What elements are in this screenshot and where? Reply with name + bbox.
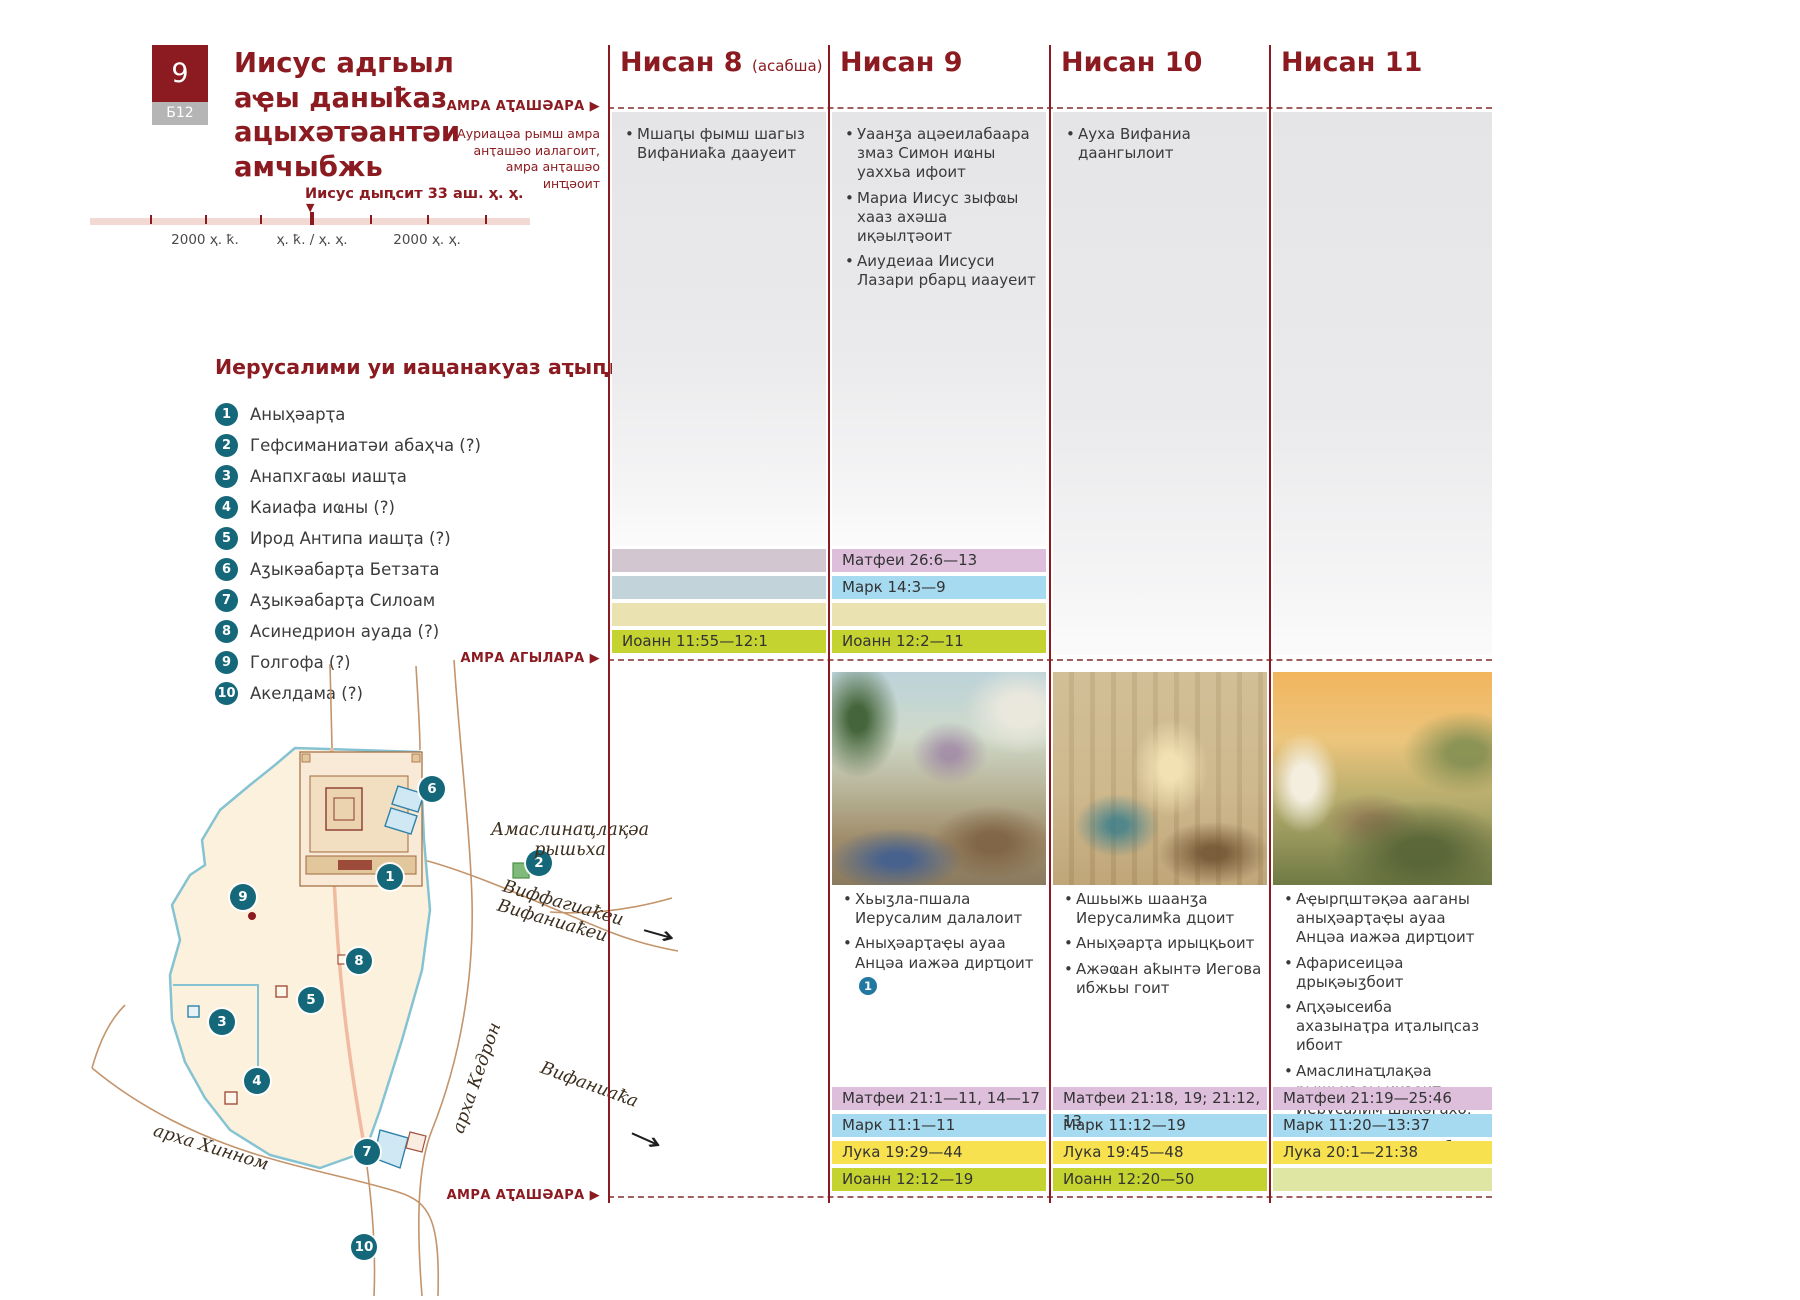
ref-matthew: Матфеи 21:18, 19; 21:12, 13 xyxy=(1053,1087,1267,1110)
event-item: Аныҳәарҭаҿы ауаа Анцәа иажәа дирҵоит1 xyxy=(842,934,1042,994)
place-label: Асинедрион ауада (?) xyxy=(250,622,439,641)
place-item: 6Аӡыкәабарҭа Бетзата xyxy=(215,558,440,584)
place-item: 3Анапхгаҩы иашҭа xyxy=(215,465,407,491)
event-item: Афарисеицәа дрықәыӡбоит xyxy=(1283,954,1488,992)
timeline-tick-label: 2000 ҳ. ҳ. xyxy=(367,232,487,248)
column-header: Нисан 10 xyxy=(1061,47,1202,78)
place-number-badge: 7 xyxy=(215,589,238,612)
map-marker-8: 8 xyxy=(346,948,372,974)
place-label: Аӡыкәабарҭа Бетзата xyxy=(250,560,440,579)
column-nisan-10: Нисан 10 Ауха Вифаниа даангылоит Ашьыжь … xyxy=(1049,45,1267,1203)
timeline-tick-center xyxy=(310,212,314,225)
column-header: Нисан 11 xyxy=(1281,47,1422,78)
evening-events-panel xyxy=(1273,112,1492,655)
column-header: Нисан 8 (асабша) xyxy=(620,47,823,78)
event-item: Аныҳәарҭа ирыцқьоит xyxy=(1063,934,1263,953)
column-nisan-9: Нисан 9 Уаанӡа ацәеилабаара змаз Симон и… xyxy=(828,45,1046,1203)
map-marker-10: 10 xyxy=(351,1234,377,1260)
timeline-tick xyxy=(150,215,152,224)
evening-events-panel: Уаанӡа ацәеилабаара змаз Симон иҩны уахх… xyxy=(832,112,1046,546)
ref-john: Иоанн 12:12—19 xyxy=(832,1168,1046,1191)
map-marker-1: 1 xyxy=(377,864,403,890)
map-reference-badge: 1 xyxy=(859,977,877,995)
column-header: Нисан 9 xyxy=(840,47,963,78)
column-title: Нисан 9 xyxy=(840,47,963,78)
ref-john: Иоанн 11:55—12:1 xyxy=(612,630,826,653)
event-item: Аԥҳәысеиба ахазынаҭра иҭалыԥсаз ибоит xyxy=(1283,998,1488,1056)
column-title: Нисан 8 xyxy=(620,47,743,78)
timeline-tick xyxy=(485,215,487,224)
map-marker-5: 5 xyxy=(298,987,324,1013)
event-item: Ажәҩан аҟынтә Иегова ибжьы гоит xyxy=(1063,960,1263,998)
map-marker-9: 9 xyxy=(230,884,256,910)
scripture-refs: Иоанн 11:55—12:1 xyxy=(612,549,826,657)
timeline-tick xyxy=(205,215,207,224)
sunset-label-top: АМРА АҬАШӘАРА ▶ xyxy=(380,99,600,114)
illustration-teaching-olives xyxy=(1273,672,1492,885)
place-label: Аныҳәарҭа xyxy=(250,405,345,424)
place-number-badge: 6 xyxy=(215,558,238,581)
chart-page: 9 Б12 Иисус адгьыл аҿы даныҟаз ацыхәтәан… xyxy=(0,0,1800,1300)
evening-events-panel: Ауха Вифаниа даангылоит xyxy=(1053,112,1267,655)
map-marker-3: 3 xyxy=(209,1009,235,1035)
event-item: Аиудеиаа Иисуси Лазари рбарц иаауеит xyxy=(844,252,1038,290)
map-marker-4: 4 xyxy=(244,1068,270,1094)
place-label: Анапхгаҩы иашҭа xyxy=(250,467,407,486)
scripture-refs: Матфеи 21:19—25:46 Марк 11:20—13:37 Лука… xyxy=(1273,1087,1492,1195)
timeline-tick xyxy=(427,215,429,224)
ref-john xyxy=(1273,1168,1492,1191)
scripture-refs: Матфеи 21:1—11, 14—17 Марк 11:1—11 Лука … xyxy=(832,1087,1046,1195)
scripture-refs: Матфеи 26:6—13 Марк 14:3—9 Иоанн 12:2—11 xyxy=(832,549,1046,657)
daytime-events: Ашьыжь шаанӡа Иерусалимҟа дцоит Аныҳәарҭ… xyxy=(1053,890,1267,1004)
sunset-label-text: АМРА АҬАШӘАРА xyxy=(447,99,585,114)
ref-john: Иоанн 12:20—50 xyxy=(1053,1168,1267,1191)
ref-mark: Марк 11:1—11 xyxy=(832,1114,1046,1137)
event-text: Аныҳәарҭаҿы ауаа Анцәа иажәа дирҵоит xyxy=(855,934,1034,971)
ref-john: Иоанн 12:2—11 xyxy=(832,630,1046,653)
ref-mark: Марк 14:3—9 xyxy=(832,576,1046,599)
timeline-tick xyxy=(370,215,372,224)
map-marker-7: 7 xyxy=(354,1139,380,1165)
ref-matthew: Матфеи 26:6—13 xyxy=(832,549,1046,572)
timeline-tick-label: 2000 ҳ. ҟ. xyxy=(145,232,265,248)
place-item: 1Аныҳәарҭа xyxy=(215,403,345,429)
daytime-events: Хьыӡла-пшала Иерусалим далалоит Аныҳәарҭ… xyxy=(832,890,1046,1001)
place-label: Каиафа иҩны (?) xyxy=(250,498,395,517)
ref-luke: Лука 19:45—48 xyxy=(1053,1141,1267,1164)
timeline-tick-label: ҳ. ҟ. / ҳ. ҳ. xyxy=(252,232,372,248)
event-item: Мариа Иисус зыфҩы хааз ахәша иқәылҭәоит xyxy=(844,189,1038,247)
illustration-temple-cleansing xyxy=(1053,672,1267,885)
map-marker-6: 6 xyxy=(419,776,445,802)
section-code-badge: Б12 xyxy=(152,102,208,125)
scripture-refs: Матфеи 21:18, 19; 21:12, 13 Марк 11:12—1… xyxy=(1053,1087,1267,1195)
ref-luke: Лука 19:29—44 xyxy=(832,1141,1046,1164)
place-number-badge: 2 xyxy=(215,434,238,457)
column-nisan-8: Нисан 8 (асабша) Мшаԥы фымш шагыз Вифани… xyxy=(608,45,826,1203)
column-title: Нисан 11 xyxy=(1281,47,1422,78)
place-number-badge: 4 xyxy=(215,496,238,519)
event-item: Хьыӡла-пшала Иерусалим далалоит xyxy=(842,890,1042,928)
ref-mark: Марк 11:12—19 xyxy=(1053,1114,1267,1137)
event-item: Ашьыжь шаанӡа Иерусалимҟа дцоит xyxy=(1063,890,1263,928)
place-item: 8Асинедрион ауада (?) xyxy=(215,620,439,646)
place-number-badge: 3 xyxy=(215,465,238,488)
jerusalem-map xyxy=(80,660,680,1300)
sunset-note: Ауриацәа рымш амра анҭашәо иалагоит, амр… xyxy=(455,126,600,192)
place-label: Аӡыкәабарҭа Силоам xyxy=(250,591,435,610)
ref-matthew: Матфеи 21:1—11, 14—17 xyxy=(832,1087,1046,1110)
place-item: 4Каиафа иҩны (?) xyxy=(215,496,395,522)
triangle-right-icon: ▶ xyxy=(590,99,600,114)
event-item: Ауха Вифаниа даангылоит xyxy=(1065,125,1259,163)
place-label: Гефсиманиатәи абаҳча (?) xyxy=(250,436,481,455)
page-title: Иисус адгьыл аҿы даныҟаз ацыхәтәантәи ам… xyxy=(234,46,489,185)
place-item: 5Ирод Антипа иашҭа (?) xyxy=(215,527,451,553)
column-nisan-11: Нисан 11 Аҿырԥштәқәа ааганы аныҳәарҭаҿы … xyxy=(1269,45,1492,1203)
ref-luke xyxy=(612,603,826,626)
ref-matthew: Матфеи 21:19—25:46 xyxy=(1273,1087,1492,1110)
evening-events-panel: Мшаԥы фымш шагыз Вифаниаҟа даауеит xyxy=(612,112,826,546)
event-item: Мшаԥы фымш шагыз Вифаниаҟа даауеит xyxy=(624,125,818,163)
event-item: Аҿырԥштәқәа ааганы аныҳәарҭаҿы ауаа Анцә… xyxy=(1283,890,1488,948)
ref-matthew xyxy=(612,549,826,572)
place-label: Ирод Антипа иашҭа (?) xyxy=(250,529,451,548)
timeline-tick xyxy=(260,215,262,224)
ref-mark xyxy=(612,576,826,599)
places-heading: Иерусалими уи иацанакуаз аҭыԥқәеи xyxy=(215,355,665,379)
place-number-badge: 1 xyxy=(215,403,238,426)
place-number-badge: 8 xyxy=(215,620,238,643)
column-title: Нисан 10 xyxy=(1061,47,1202,78)
place-item: 2Гефсиманиатәи абаҳча (?) xyxy=(215,434,481,460)
ref-luke: Лука 20:1—21:38 xyxy=(1273,1141,1492,1164)
ref-luke xyxy=(832,603,1046,626)
event-item: Уаанӡа ацәеилабаара змаз Симон иҩны уахх… xyxy=(844,125,1038,183)
illustration-triumphal-entry xyxy=(832,672,1046,885)
section-number-badge: 9 xyxy=(152,45,208,102)
place-number-badge: 5 xyxy=(215,527,238,550)
column-subtitle: (асабша) xyxy=(752,57,823,75)
ref-mark: Марк 11:20—13:37 xyxy=(1273,1114,1492,1137)
place-item: 7Аӡыкәабарҭа Силоам xyxy=(215,589,435,615)
